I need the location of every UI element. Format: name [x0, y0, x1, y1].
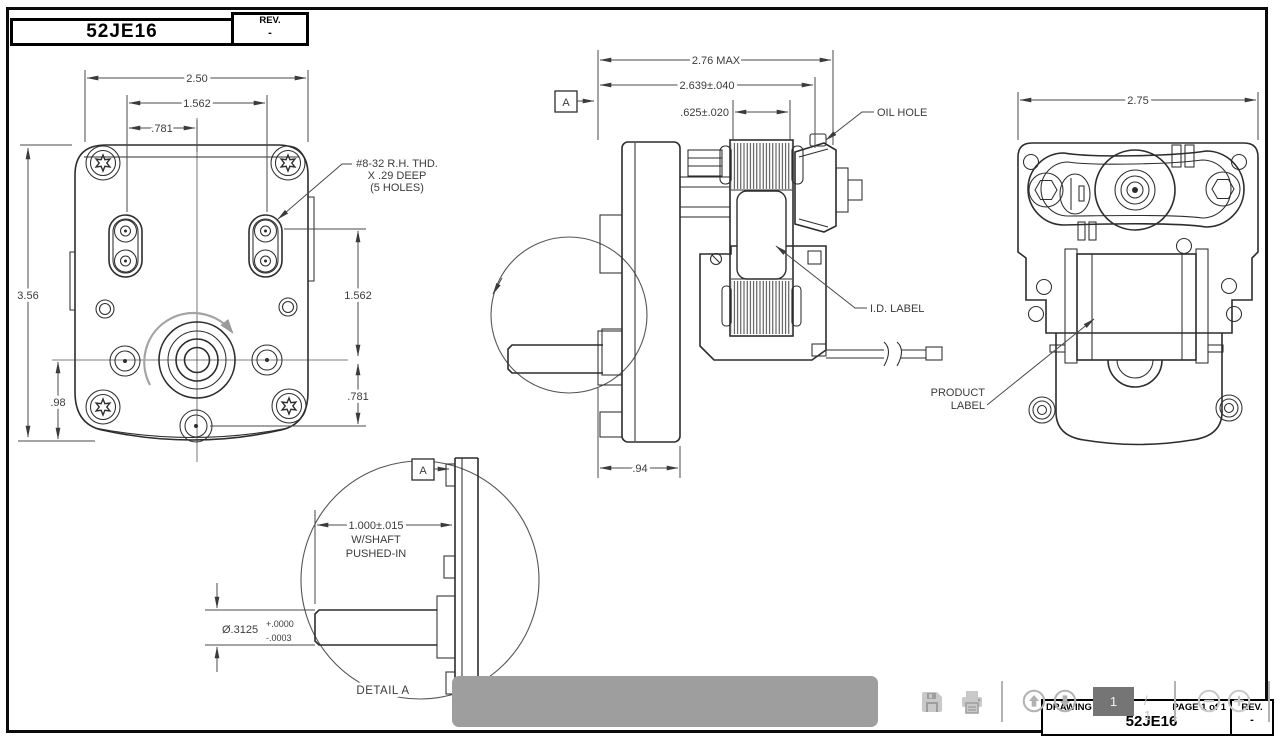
- detail-plate-section: [437, 458, 478, 702]
- detail-boundary-circle: [301, 461, 539, 699]
- page-down-button[interactable]: [1052, 688, 1078, 714]
- dim-gearbox-depth: .94: [632, 463, 647, 475]
- page-up-button[interactable]: [1021, 688, 1047, 714]
- page-total-label: / 1: [1144, 693, 1151, 723]
- dim-shaft-dia-plus: +.0000: [266, 619, 294, 629]
- gearbox-side-plate: [600, 142, 680, 442]
- rear-screw: [1029, 397, 1055, 423]
- thread-note-line2: X .29 DEEP: [368, 170, 427, 182]
- dim-body-length: 2.639±.040: [680, 80, 735, 92]
- pdf-drawing-page: 52JE16 REV. -: [0, 0, 1280, 742]
- output-shaft-side: [508, 331, 622, 385]
- side-view: 2.76 MAX 2.639±.040 .625±.020 .94 A OIL …: [437, 50, 942, 610]
- dim-shaft-height: .98: [50, 397, 65, 409]
- zoom-in-icon: [1226, 688, 1252, 714]
- dim-shaft-length-note1: W/SHAFT: [351, 534, 401, 546]
- dim-right-upper: 1.562: [344, 290, 372, 302]
- hex-bolt: [1206, 172, 1240, 206]
- drawing-number-header: 52JE16: [10, 18, 234, 46]
- torx-screw: [271, 146, 305, 180]
- dim-shaft-dia: Ø.3125: [222, 624, 258, 636]
- pdf-toolbar: 1 / 1: [452, 676, 878, 727]
- print-icon: [958, 688, 986, 716]
- mounting-slot-right: [249, 215, 282, 277]
- id-label-text: I.D. LABEL: [870, 303, 924, 315]
- zoom-out-icon: [1196, 688, 1222, 714]
- dim-slot-span: 1.562: [183, 98, 211, 110]
- thread-note-line3: (5 HOLES): [370, 182, 424, 194]
- plate-hole: [1029, 307, 1044, 322]
- engineering-drawing-canvas: 2.50 1.562 .781 3.56 .98 1.562 .781 #8-3…: [0, 0, 1280, 742]
- shaft-flank-screws: [110, 345, 282, 442]
- clip-feature: [1060, 174, 1090, 214]
- oil-hole-label: OIL HOLE: [877, 107, 927, 119]
- dim-overall-height: 3.56: [17, 290, 38, 302]
- dim-shaft-length-note2: PUSHED-IN: [346, 548, 407, 560]
- plate-hole: [1222, 279, 1237, 294]
- plate-hole: [1024, 155, 1039, 170]
- print-button[interactable]: [958, 688, 986, 716]
- save-button[interactable]: [918, 688, 946, 716]
- plate-hole: [1227, 307, 1242, 322]
- dim-right-lower: .781: [347, 391, 368, 403]
- rear-plate-outline: [1018, 143, 1258, 333]
- thread-note-line1: #8-32 R.H. THD.: [356, 158, 438, 170]
- mounting-slot-left: [109, 215, 142, 277]
- plate-hole: [1037, 280, 1052, 295]
- motor-stator: [720, 140, 803, 336]
- drawing-number-footer: 52JE16: [1043, 713, 1230, 730]
- detail-caption: DETAIL A: [356, 685, 409, 697]
- dim-overall-width: 2.50: [186, 73, 207, 85]
- dim-stator-width: .625±.020: [680, 107, 729, 119]
- rear-view: 2.75 PRODUCT LABEL: [931, 92, 1258, 445]
- toolbar-divider: [1174, 681, 1176, 722]
- product-label-line1: PRODUCT: [931, 387, 986, 399]
- hex-bolt: [1029, 173, 1063, 207]
- thread-note-leader: [278, 164, 352, 219]
- dim-shaft-dia-minus: -.0003: [266, 633, 292, 643]
- rear-screw: [1216, 395, 1242, 421]
- rear-lower-body: [1056, 333, 1222, 445]
- dim-shaft-length: 1.000±.015: [349, 520, 404, 532]
- rev-cell-header: REV. -: [231, 12, 309, 46]
- rev-value: -: [1232, 714, 1272, 726]
- zoom-out-button[interactable]: [1196, 688, 1222, 714]
- rear-center-hub: [1095, 150, 1175, 230]
- dim-slot-offset: .781: [151, 123, 172, 135]
- oil-hole-bracket: [795, 134, 862, 232]
- torx-screw: [272, 389, 306, 423]
- product-label-leader: [987, 319, 1094, 405]
- page-number-input[interactable]: 1: [1093, 687, 1134, 716]
- rev-value: -: [234, 27, 306, 39]
- dim-rear-width: 2.75: [1127, 95, 1148, 107]
- detail-datum-letter: A: [419, 465, 427, 477]
- torx-screw: [86, 390, 120, 424]
- pilot-hole: [96, 298, 297, 318]
- rev-label: REV.: [234, 15, 306, 27]
- detail-a-circle: [491, 237, 647, 393]
- zoom-in-button[interactable]: [1226, 688, 1252, 714]
- front-view: 2.50 1.562 .781 3.56 .98 1.562 .781 #8-3…: [17, 70, 438, 462]
- plate-hole: [1177, 239, 1192, 254]
- dim-max-length: 2.76 MAX: [692, 55, 741, 67]
- datum-a-letter: A: [562, 97, 570, 109]
- lead-wires: [826, 342, 942, 366]
- page-down-icon: [1052, 688, 1078, 714]
- detail-shaft: [315, 610, 437, 645]
- save-icon: [918, 688, 946, 716]
- product-label-line2: LABEL: [951, 400, 985, 412]
- page-up-icon: [1021, 688, 1047, 714]
- title-block-top: 52JE16 REV. -: [10, 12, 309, 46]
- toolbar-divider: [1268, 681, 1270, 722]
- torx-screw: [86, 146, 120, 180]
- product-label-area: [1050, 249, 1223, 387]
- detail-circle-arrow: [493, 278, 502, 294]
- detail-a-view: A 1.000±.015 W/SHAFT PUSHED-IN Ø.3125 +.…: [205, 458, 539, 702]
- gearbox-front-outline: [75, 145, 308, 440]
- toolbar-divider: [1001, 681, 1003, 722]
- id-label-area: [737, 191, 786, 279]
- right-tab: [308, 197, 314, 281]
